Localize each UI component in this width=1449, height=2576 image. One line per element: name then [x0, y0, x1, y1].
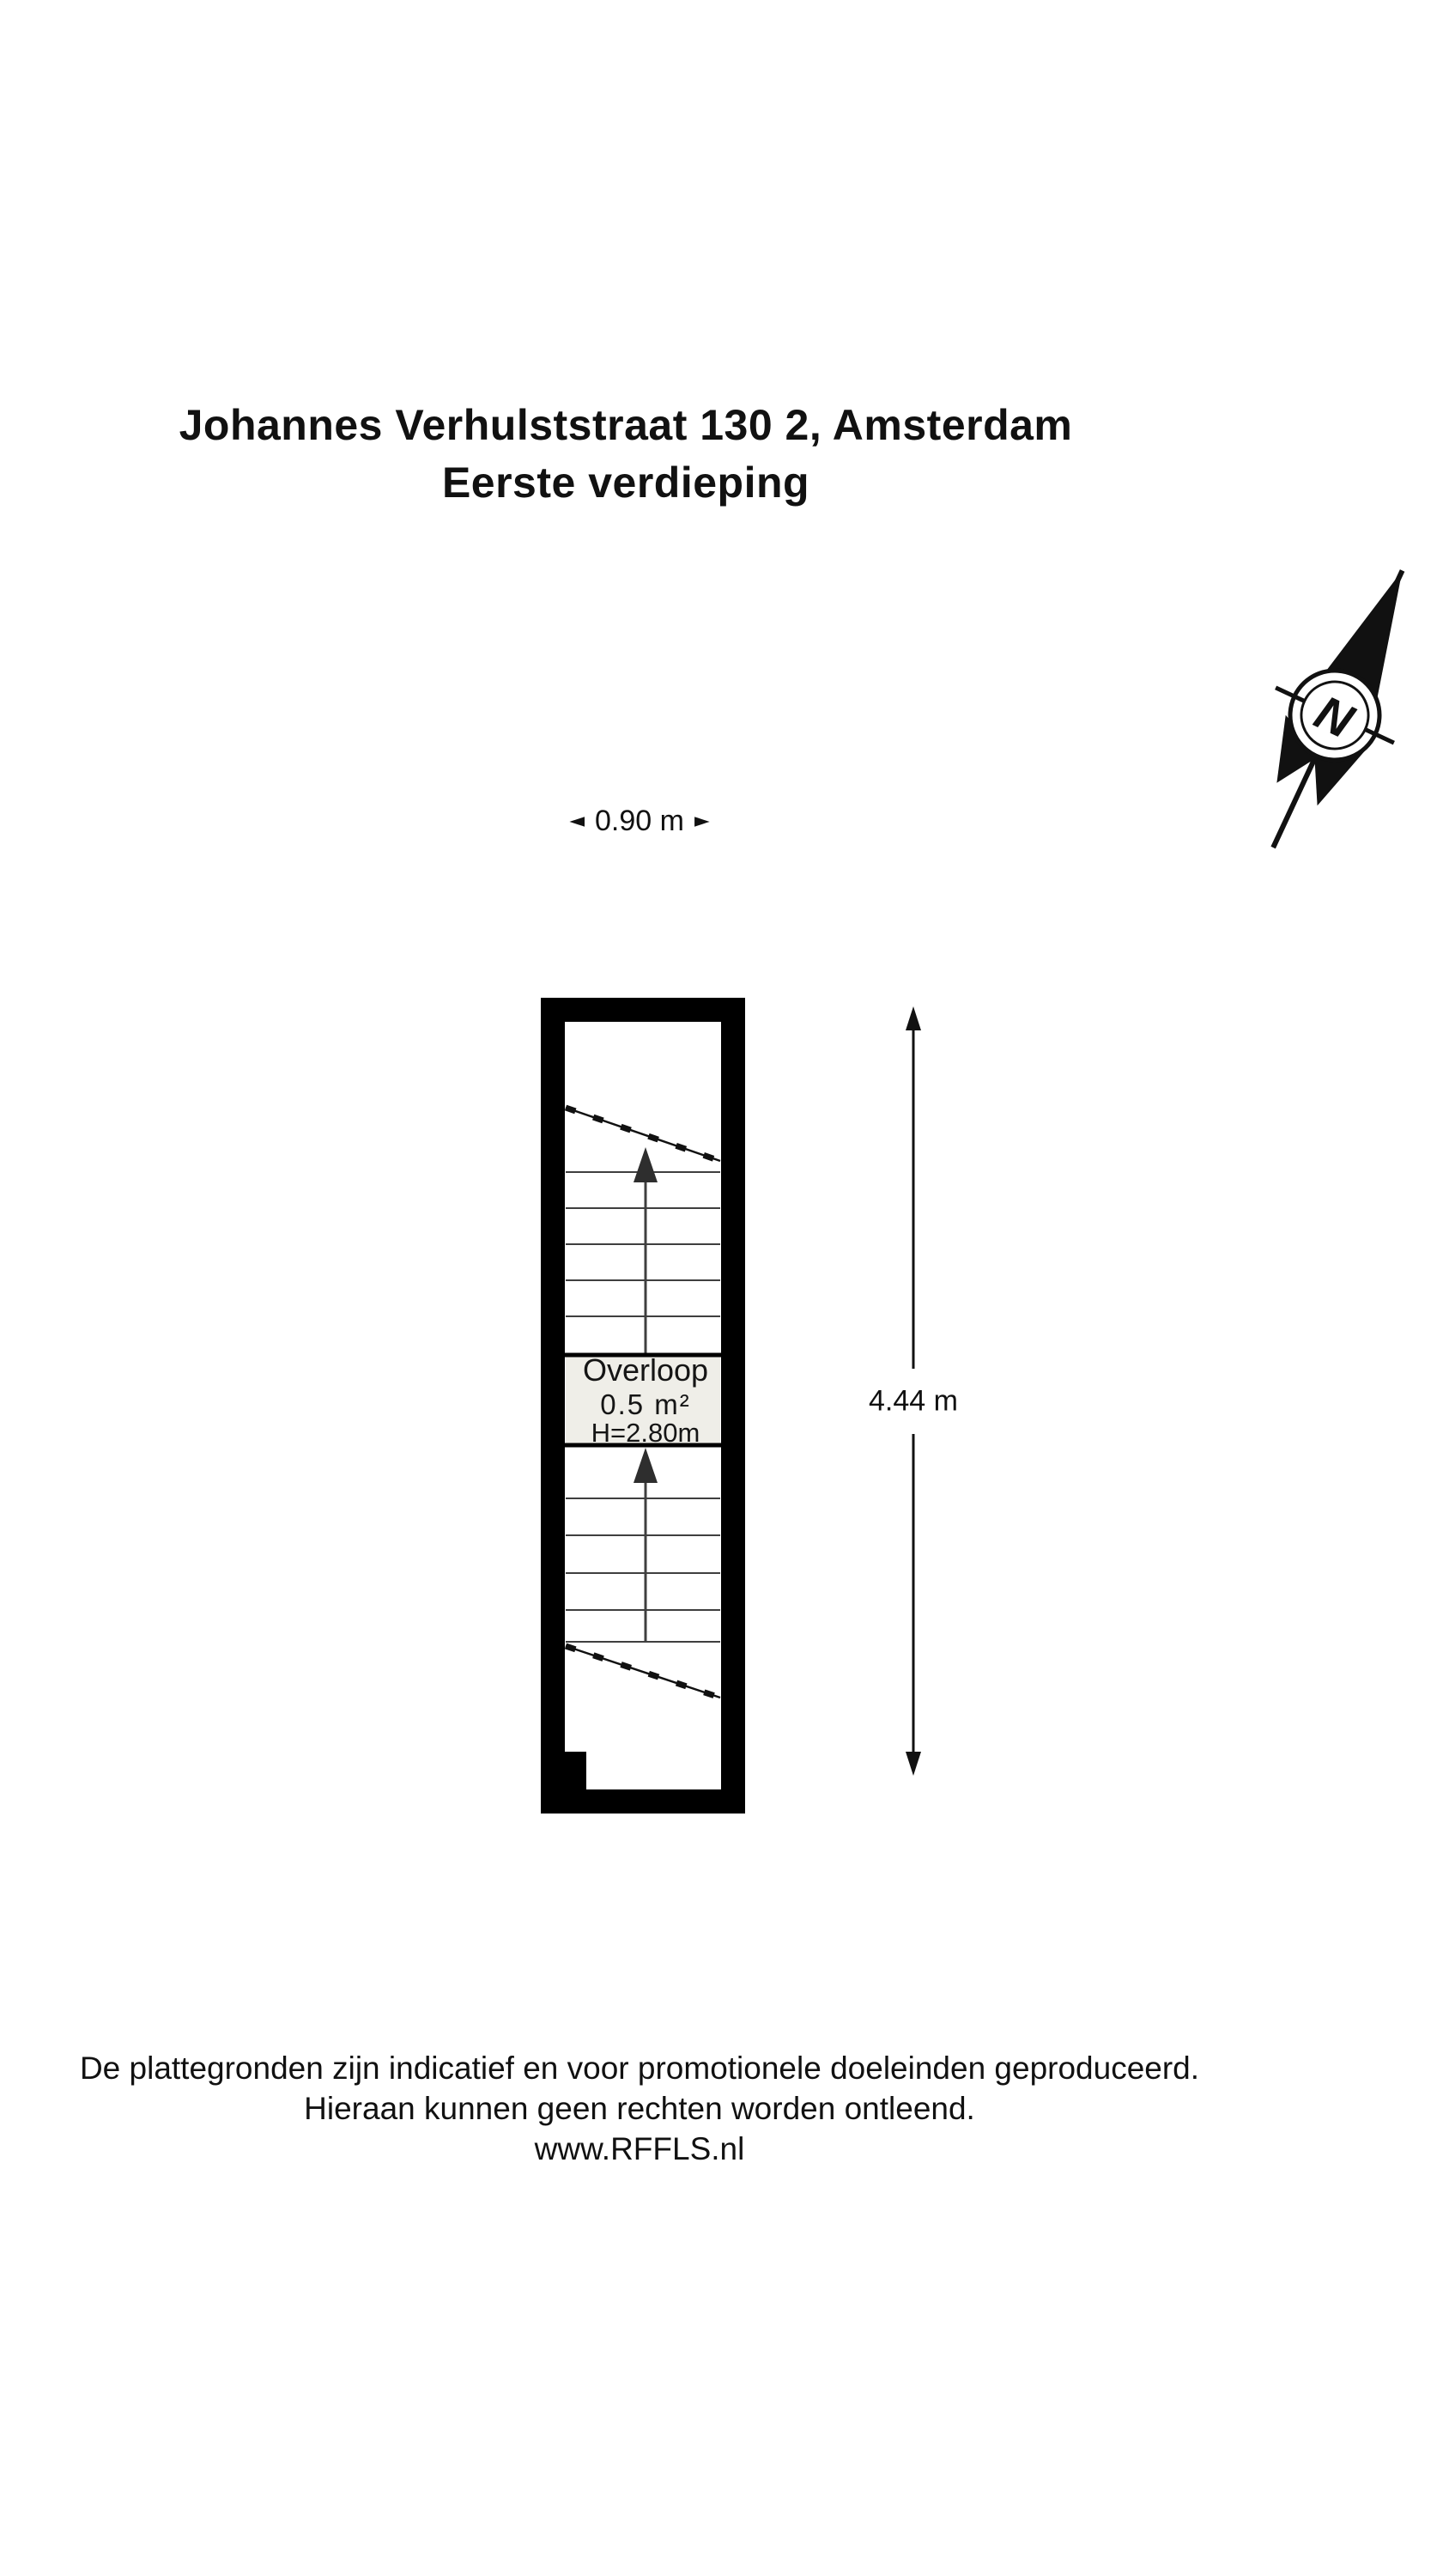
down-arrowhead-icon [906, 1752, 921, 1776]
dimension-line [912, 1434, 915, 1759]
footer-website: www.RFFLS.nl [0, 2129, 1279, 2169]
width-dimension-label: 0.90 m [595, 805, 684, 838]
title-floor-name: Eerste verdieping [0, 454, 1252, 512]
floorplan-canvas: Overloop 0.5 m² H=2.80m [541, 998, 745, 1814]
height-dimension: 4.44 m [893, 1006, 934, 1776]
disclaimer-line-2: Hieraan kunnen geen rechten worden ontle… [0, 2088, 1279, 2129]
page-title: Johannes Verhulststraat 130 2, Amsterdam… [0, 397, 1252, 512]
disclaimer-line-1: De plattegronden zijn indicatief en voor… [0, 2048, 1279, 2088]
height-dimension-label: 4.44 m [862, 1385, 965, 1419]
title-address: Johannes Verhulststraat 130 2, Amsterdam [0, 397, 1252, 454]
left-arrowhead-icon: ◄ [569, 811, 585, 831]
right-arrowhead-icon: ► [694, 811, 710, 831]
width-dimension: ◄ 0.90 m ► [511, 799, 768, 843]
room-area-label: 0.5 m² [600, 1388, 691, 1420]
room-ceiling-height-label: H=2.80m [591, 1418, 700, 1448]
north-compass-icon: N [1249, 552, 1421, 878]
footer-disclaimer: De plattegronden zijn indicatief en voor… [0, 2048, 1279, 2169]
room-name-label: Overloop [583, 1352, 708, 1388]
wall-stub [565, 1752, 586, 1791]
dimension-line [912, 1024, 915, 1369]
